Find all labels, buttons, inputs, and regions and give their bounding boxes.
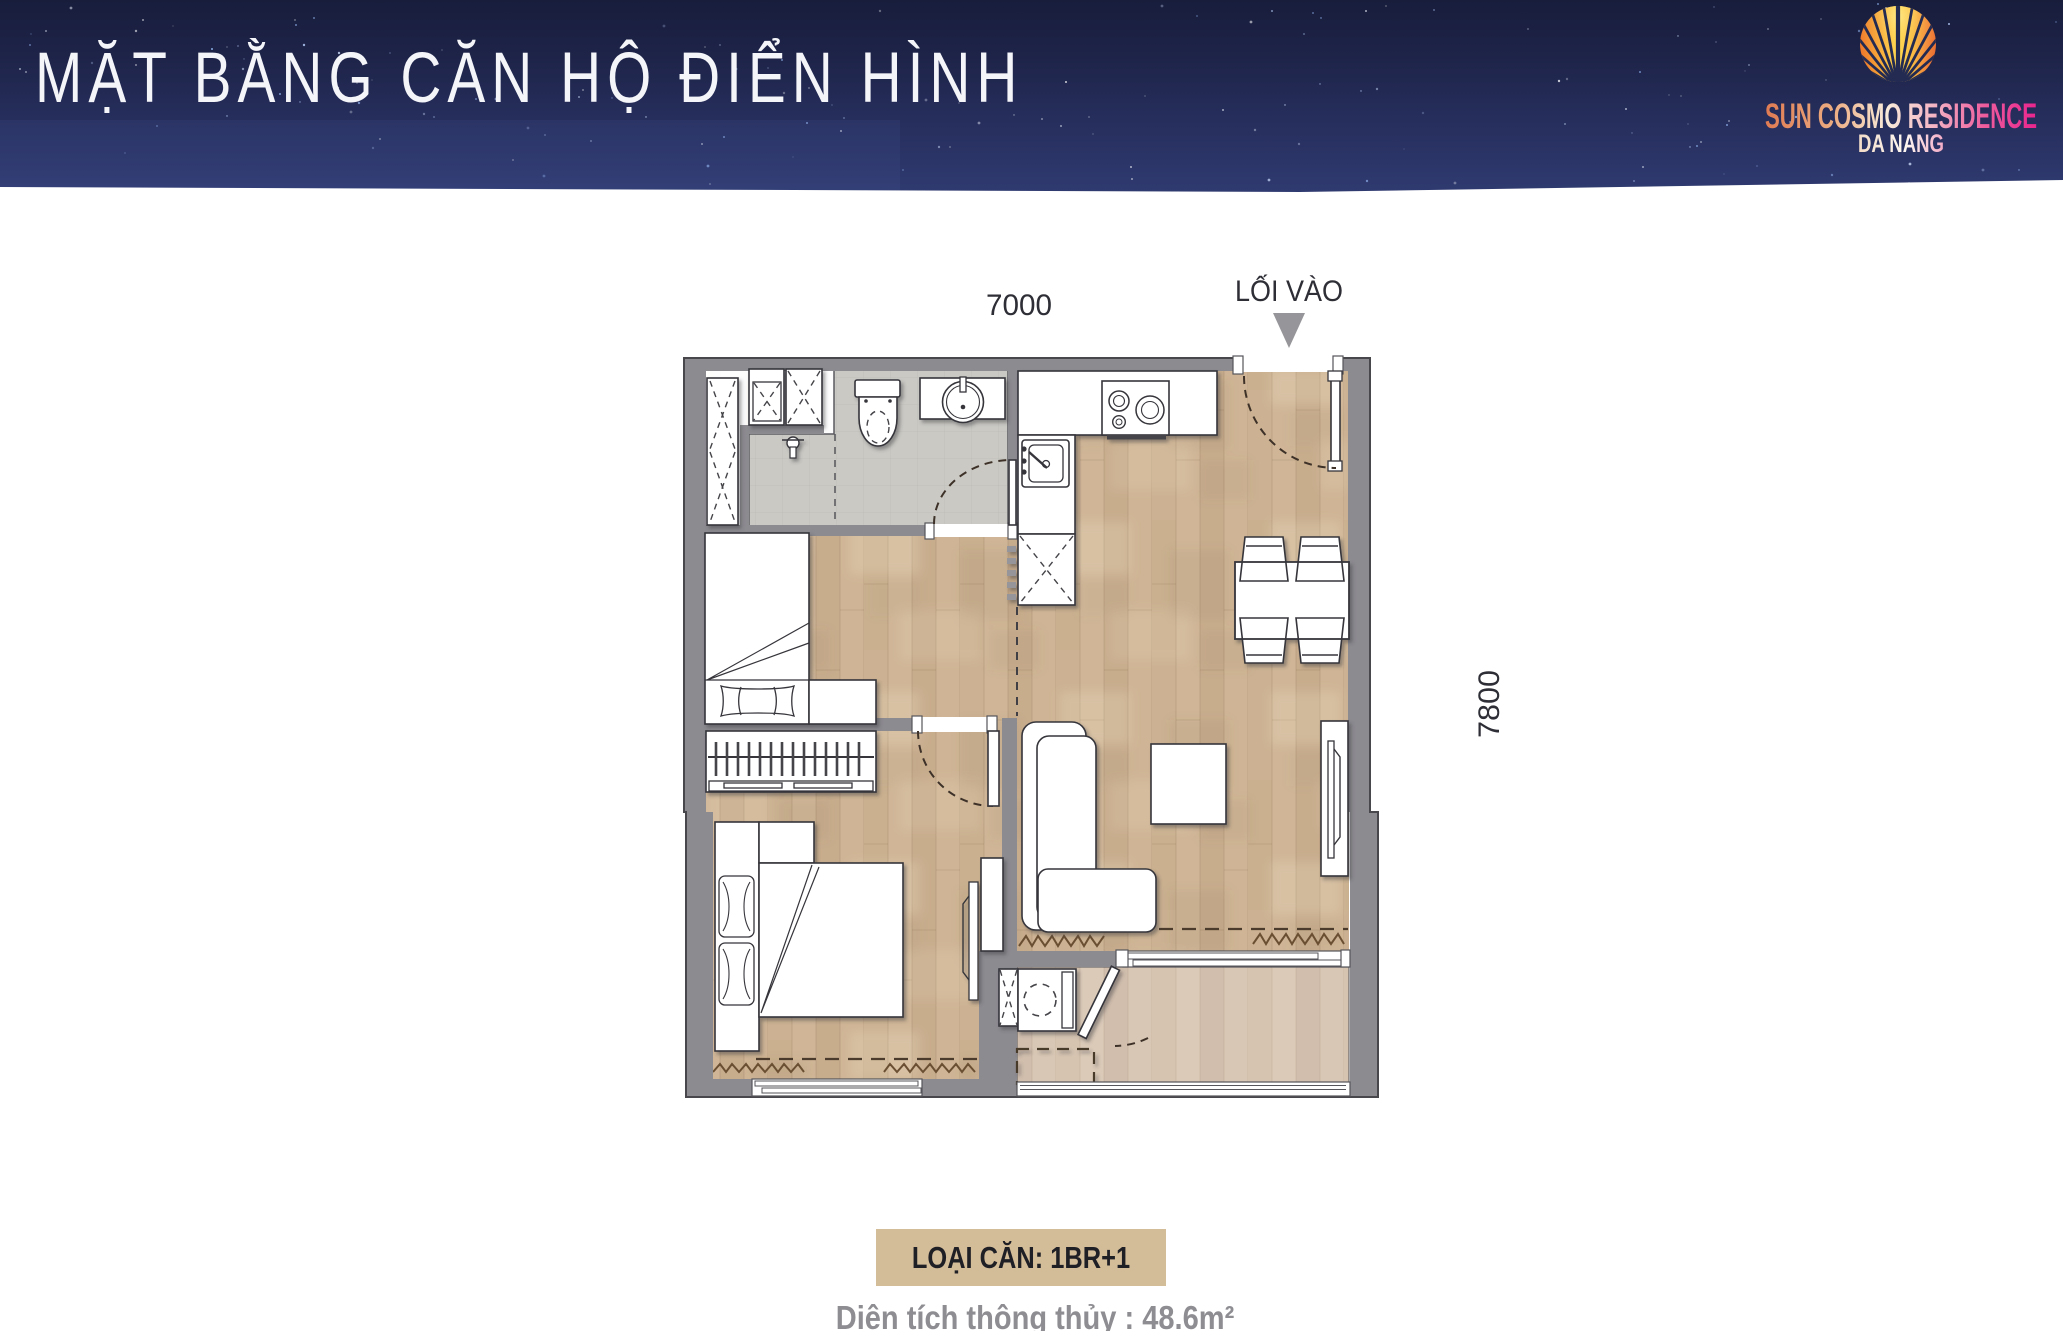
- svg-text:7000: 7000: [986, 289, 1052, 322]
- svg-text:LỐI VÀO: LỐI VÀO: [1235, 274, 1343, 308]
- svg-text:7800: 7800: [1473, 670, 1506, 738]
- svg-text:DA NANG: DA NANG: [1858, 130, 1944, 158]
